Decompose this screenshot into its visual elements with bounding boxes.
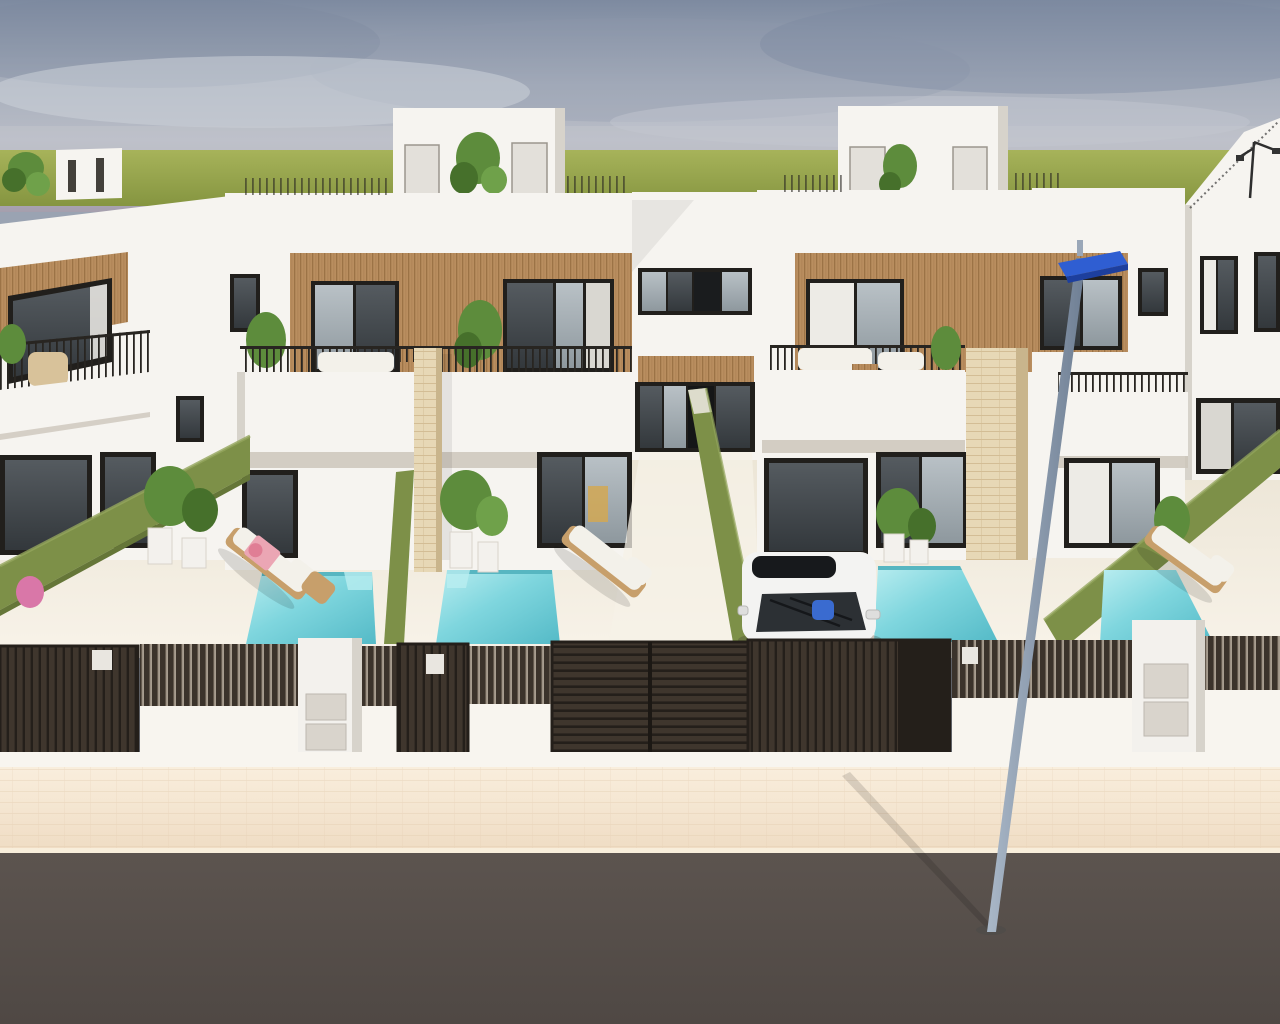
rooftop-door xyxy=(96,158,104,192)
fence-section xyxy=(1205,636,1280,690)
car-sunroof xyxy=(752,556,836,578)
gate-post xyxy=(898,640,950,757)
base-wall-strip xyxy=(0,752,1280,767)
roof-railing xyxy=(782,175,844,192)
upper-window xyxy=(1200,256,1238,334)
outdoor-armchair xyxy=(878,352,924,370)
balcony xyxy=(762,326,965,453)
letterbox-door xyxy=(1144,702,1188,736)
upper-window-band xyxy=(638,268,752,315)
lamp-head xyxy=(1236,155,1244,161)
intercom-plate xyxy=(962,647,978,664)
driveway-gate xyxy=(552,642,748,758)
sidewalk xyxy=(0,767,1280,853)
rooftop-door xyxy=(512,143,547,195)
fence-section xyxy=(362,646,398,706)
pool-steps xyxy=(344,572,372,590)
pedestrian-gate xyxy=(398,644,468,756)
coffee-table xyxy=(400,362,416,372)
letterbox-door xyxy=(306,724,346,750)
bag-inside-car xyxy=(812,600,834,620)
balcony xyxy=(1050,372,1188,468)
fence-section xyxy=(952,640,1132,698)
render-stage xyxy=(0,0,1280,1024)
car-windshield xyxy=(756,592,866,632)
rooftop-door xyxy=(953,147,987,196)
roof-railing xyxy=(1010,173,1062,190)
car xyxy=(738,552,882,650)
pink-plant xyxy=(16,576,44,608)
car-mirror xyxy=(866,610,880,619)
mailbox-pillar xyxy=(1132,620,1205,757)
scene-canvas xyxy=(0,0,1280,1024)
upper-window xyxy=(1254,252,1280,332)
pool-steps xyxy=(447,570,470,588)
rooftop-door xyxy=(68,160,76,192)
wicker-chair xyxy=(28,352,68,386)
driveway-gate xyxy=(748,640,950,757)
balcony-plant xyxy=(931,326,961,370)
roof-railing xyxy=(240,178,390,195)
gate-seam xyxy=(648,642,652,758)
balcony-slab xyxy=(1050,392,1188,456)
roof-railing xyxy=(566,176,630,193)
intercom-plate xyxy=(92,650,112,670)
letterbox-door xyxy=(1144,664,1188,698)
fence-section xyxy=(140,644,298,706)
fence-section xyxy=(468,646,552,704)
paving-texture xyxy=(0,767,1280,853)
letterbox-door xyxy=(306,694,346,720)
rooftop-door xyxy=(850,147,885,196)
window-glass xyxy=(180,400,200,438)
yellow-chair xyxy=(588,486,608,522)
curb xyxy=(0,848,1280,853)
car-mirror xyxy=(738,606,748,615)
balcony-slab xyxy=(762,370,965,440)
wood-lintel xyxy=(638,356,754,384)
road xyxy=(0,853,1280,1024)
stone-pillar xyxy=(966,348,1028,560)
mailbox-pillar xyxy=(298,638,362,757)
lamp-head xyxy=(1272,148,1280,154)
fence-base-wall xyxy=(140,706,298,756)
lamp-stub xyxy=(1077,240,1083,256)
ground-slider xyxy=(764,458,868,556)
rooftop-room xyxy=(56,148,122,200)
ground-door xyxy=(1064,458,1160,548)
intercom-plate xyxy=(426,654,444,674)
rooftop-door xyxy=(405,145,439,196)
garage-gate xyxy=(0,646,138,756)
outdoor-sofa xyxy=(318,352,394,372)
stone-pillar xyxy=(414,348,452,572)
window-glass xyxy=(1142,272,1164,312)
